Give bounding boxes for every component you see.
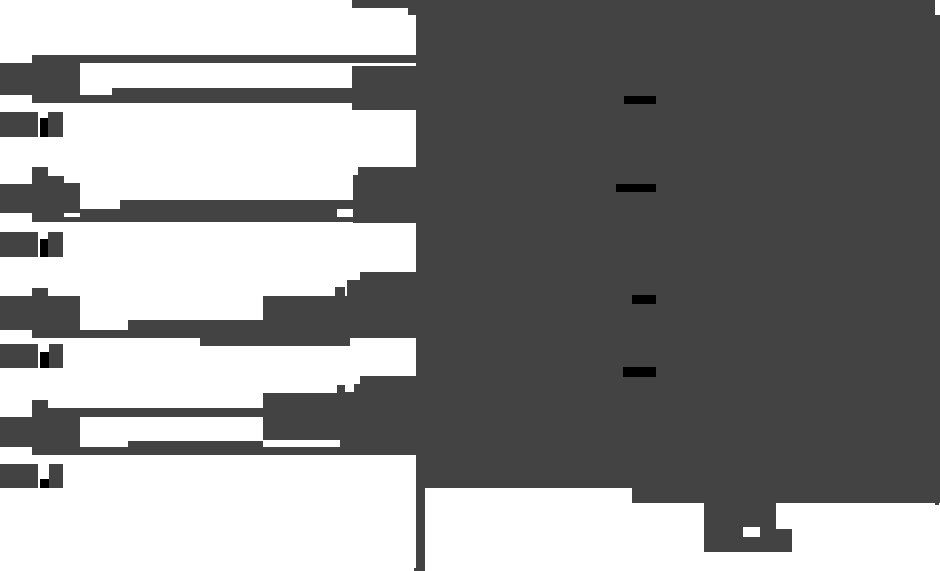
item2-text-line-b (80, 209, 337, 217)
item2-text-line-a (120, 200, 353, 209)
item1-caption-block-a (0, 112, 38, 137)
item3-connector-step-b (347, 280, 416, 296)
item4-notch (337, 385, 345, 393)
item1-connector (352, 66, 416, 110)
item4-heavy-block (263, 393, 360, 440)
item2-connector-step (358, 167, 416, 175)
item2-caption-block-a (0, 232, 38, 257)
item3-text-line-b2 (200, 338, 350, 346)
panel-top-step (408, 8, 935, 15)
item3-text-line-a (128, 320, 263, 330)
item1-caption-block-b (48, 112, 63, 137)
item3-text-line-b (32, 330, 416, 338)
item4-connector-step-b (354, 384, 416, 392)
item4-text-line-b (32, 447, 416, 455)
item2-tab (32, 167, 48, 176)
item4-caption-cursor (40, 479, 49, 488)
item3-caption-cursor (40, 352, 49, 368)
item2-icon-block-b (64, 183, 80, 213)
screen-dash-3 (632, 295, 656, 304)
item2-left-block (0, 184, 32, 213)
item1-left-block (0, 63, 32, 95)
divider-line (416, 488, 425, 568)
item3-connector-step-a (360, 272, 416, 280)
silhouette-layer (0, 0, 940, 571)
panel-bottom-extension (632, 488, 940, 503)
item3-caption-block-a (0, 344, 38, 368)
item3-caption-block-b (49, 344, 63, 368)
item1-caption-cursor (40, 118, 48, 137)
item4-caption-block-b (49, 464, 63, 488)
item4-left-block (0, 417, 32, 447)
item2-icon-block (32, 176, 64, 222)
screen-dash-4 (623, 367, 656, 377)
panel-body (416, 15, 940, 488)
item3-tab (32, 288, 48, 296)
item3-icon-block (0, 296, 80, 330)
stand-column (704, 503, 776, 529)
panel-top-edge (352, 0, 935, 8)
pixelated-screenshot-canvas (0, 0, 940, 571)
panel-corner-nub (935, 503, 939, 505)
screen-dash-1 (624, 96, 656, 104)
item2-caption-block-b (48, 232, 63, 257)
item1-text-line-b (32, 95, 353, 103)
stand-base-notch (743, 527, 760, 537)
item4-tab (32, 400, 48, 408)
item1-title-line (32, 55, 416, 63)
item1-text-line-a (112, 88, 353, 95)
screen-dash-2 (616, 184, 656, 192)
item4-connector-step-a (360, 376, 416, 384)
item4-caption-block-a (0, 464, 38, 488)
item3-notch (335, 287, 345, 296)
item2-connector (353, 175, 416, 223)
